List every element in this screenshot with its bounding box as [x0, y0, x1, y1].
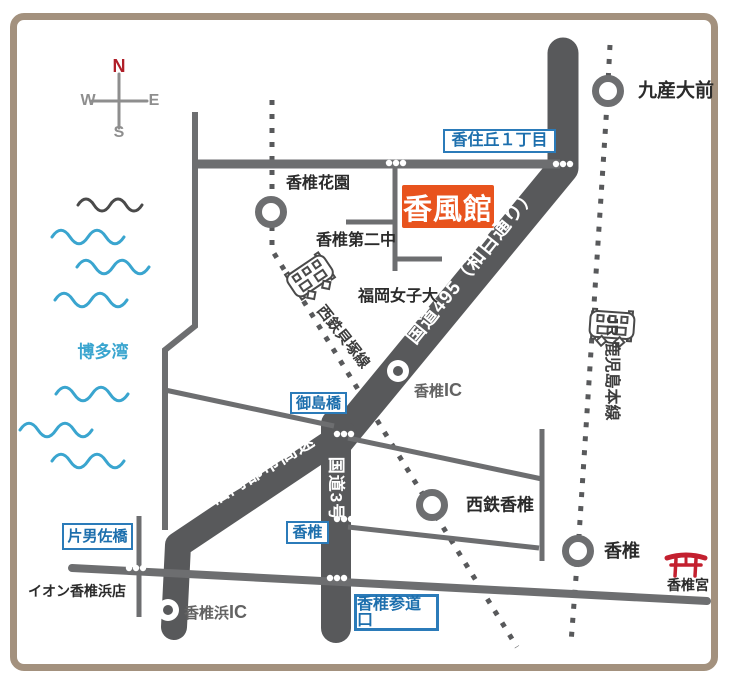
- station-label-nishitetsu-kashii: 西鉄香椎: [466, 497, 534, 514]
- intersection-box-kataozabashi: 片男佐橋: [62, 523, 133, 550]
- access-map: N W E S 博多湾 香風館 国道495（和白通り） 福岡都市高速 国道3号 …: [0, 0, 737, 687]
- kashiihama-ic-suffix: IC: [229, 602, 247, 622]
- destination-box: 香風館: [402, 185, 494, 228]
- kashiihama-ic-name: 香椎浜: [184, 605, 229, 622]
- kashiihama-ic-label: 香椎浜IC: [184, 603, 247, 621]
- station-label-kashii-jr: 香椎: [604, 542, 640, 560]
- landmark-aeon-kashiihama: イオン香椎浜店: [28, 584, 126, 598]
- intersection-box-sandoguchi: 香椎参道口: [354, 594, 439, 631]
- compass-north-label: N: [113, 57, 126, 75]
- landmark-kashiigu: 香椎宮: [667, 578, 709, 592]
- kashii-ic-suffix: IC: [444, 380, 462, 400]
- compass-west-label: W: [80, 93, 95, 109]
- intersection-box-mishimabashi: 御島橋: [290, 392, 347, 414]
- intersection-box-kasumigaoka: 香住丘１丁目: [443, 129, 556, 153]
- jr-line-label: JR 鹿児島本線: [603, 316, 619, 421]
- landmark-fukuoka-joshidai: 福岡女子大: [358, 289, 438, 305]
- compass-south-label: S: [114, 125, 125, 141]
- intersection-box-kashii: 香椎: [286, 521, 329, 544]
- kashii-ic-name: 香椎: [414, 383, 444, 400]
- station-label-kyusandaimae: 九産大前: [638, 82, 714, 101]
- kashii-ic-label: 香椎IC: [414, 381, 462, 399]
- route3-label: 国道3号: [328, 457, 345, 521]
- compass-east-label: E: [149, 93, 160, 109]
- station-label-kashiikaen: 香椎花園: [286, 176, 350, 192]
- landmark-kashii-daini: 香椎第二中: [316, 233, 396, 249]
- sea-label: 博多湾: [78, 344, 129, 361]
